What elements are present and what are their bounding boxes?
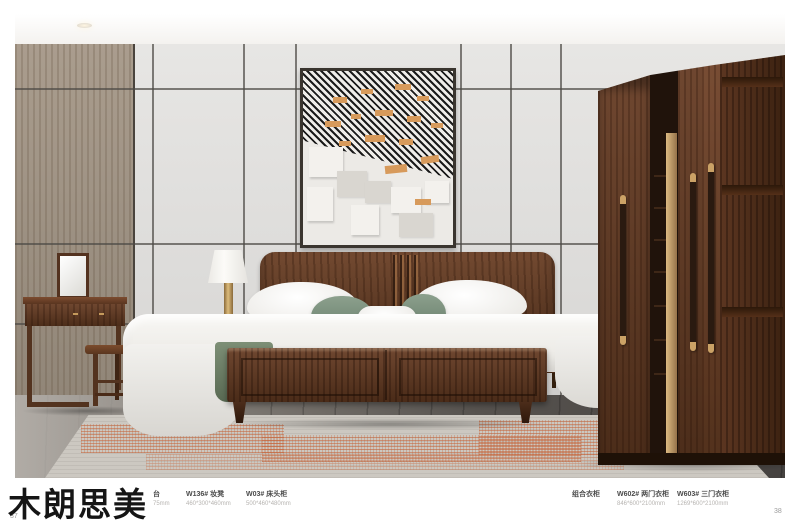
artwork-gray-block (399, 213, 433, 237)
artwork-orange-block (431, 123, 443, 128)
side-panel-rail (722, 77, 783, 87)
product-label: W136# 妆凳 460*300*460mm (186, 489, 231, 507)
artwork-orange-block (417, 96, 429, 101)
dressing-table-drawers (25, 304, 125, 326)
product-name: 台 (153, 489, 170, 499)
bed-floor-shadow (225, 418, 555, 430)
footboard-panel (399, 358, 537, 396)
artwork-orange-block (361, 89, 373, 94)
recessed-light (77, 23, 92, 28)
vanity-mirror (57, 253, 89, 299)
product-name: 组合衣柜 (572, 489, 600, 499)
product-dimensions: 1269*600*2100mm (677, 501, 729, 507)
artwork-orange-block (333, 97, 347, 103)
product-dimensions: 75mm (153, 501, 170, 507)
footboard-seam (385, 350, 387, 400)
artwork-orange-block (415, 199, 431, 205)
ceiling (15, 14, 785, 44)
dressing-table-leg (27, 326, 32, 404)
artwork-orange-block (407, 116, 421, 122)
artwork-orange-block (399, 139, 413, 145)
brand-name: 木朗思美 (8, 478, 148, 526)
abstract-artwork (300, 68, 456, 248)
artwork-orange-block (395, 84, 411, 90)
product-label: W03# 床头柜 500*460*480mm (246, 489, 291, 507)
page-number-right: 38 (774, 508, 782, 515)
side-panel-rail (722, 185, 783, 195)
artwork-orange-block (385, 164, 408, 174)
wardrobe-open-door-edge (666, 133, 677, 463)
bedroom-photo (15, 14, 785, 478)
wardrobe-unit (598, 55, 785, 465)
product-name: W602# 两门衣柜 (617, 489, 669, 499)
side-panel-rail (722, 307, 783, 317)
product-label: 组合衣柜 (572, 489, 600, 501)
artwork-white-block (351, 205, 379, 235)
artwork-gray-block (365, 181, 391, 203)
wardrobe-handle (708, 163, 714, 353)
product-label: W603# 三门衣柜 1269*600*2100mm (677, 489, 729, 507)
product-label: W602# 两门衣柜 846*600*2100mm (617, 489, 669, 507)
product-dimensions: 846*600*2100mm (617, 501, 669, 507)
rug-pattern-block (146, 454, 624, 470)
artwork-white-block (307, 187, 333, 221)
product-name: W603# 三门衣柜 (677, 489, 729, 499)
product-label: 台 75mm (153, 489, 170, 507)
drawer-pull (99, 313, 104, 315)
footboard-panel (241, 358, 379, 396)
artwork-gray-block (337, 171, 367, 197)
product-dimensions: 460*300*460mm (186, 501, 231, 507)
artwork-orange-block (375, 110, 393, 116)
drawer-pull (73, 313, 78, 315)
artwork-orange-block (339, 141, 351, 146)
dressing-table-top (23, 297, 127, 304)
artwork-orange-block (351, 114, 361, 119)
wardrobe-handle (690, 173, 696, 351)
product-name: W03# 床头柜 (246, 489, 291, 499)
artwork-orange-block (365, 135, 385, 142)
wardrobe-handle (620, 195, 626, 345)
wardrobe-side-panel (720, 55, 785, 465)
product-name: W136# 妆凳 (186, 489, 231, 499)
artwork-orange-block (325, 121, 341, 127)
wardrobe-plinth (598, 453, 785, 465)
product-dimensions: 500*460*480mm (246, 501, 291, 507)
